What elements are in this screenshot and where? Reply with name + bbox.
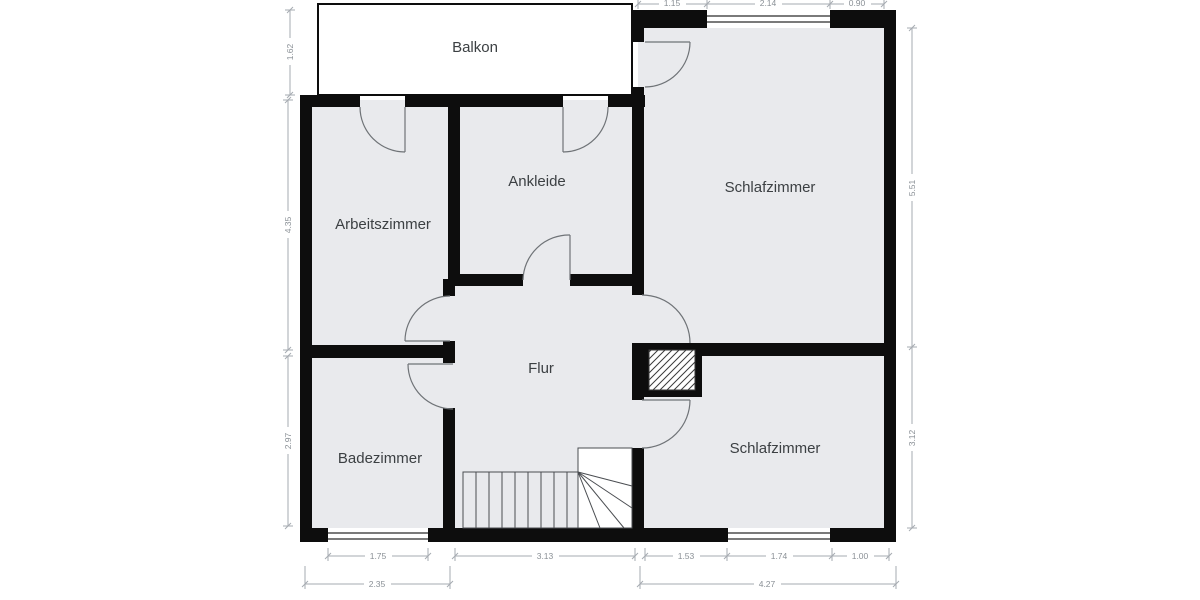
wall-bottom-a — [300, 528, 328, 542]
wall-arbeitszimmer-badezimmer — [300, 345, 455, 358]
svg-text:0.90: 0.90 — [849, 0, 866, 8]
room-label-schlafzimmer-bottom: Schlafzimmer — [730, 440, 821, 457]
wall-center-vert-a — [632, 10, 644, 42]
dim-bottom-inner-1: 3.13 — [452, 548, 638, 561]
dim-right-0: 5.51 — [907, 25, 917, 350]
wall-top-right-a — [638, 10, 707, 28]
room-label-ankleide: Ankleide — [508, 173, 566, 190]
wall-exterior-left — [300, 95, 312, 542]
wall-ankleide-south-b — [570, 274, 644, 286]
dim-top-0: 1.15 — [635, 0, 710, 9]
shaft-hatch — [649, 350, 695, 390]
floor-plan-page: Balkon Arbeitszimmer Ankleide Schlafzimm… — [0, 0, 1200, 600]
dim-bottom-inner-4: 1.00 — [832, 548, 892, 561]
wall-arbeitszimmer-ankleide — [448, 107, 460, 279]
wall-center-vert-b — [632, 87, 644, 295]
room-label-schlafzimmer-top: Schlafzimmer — [725, 179, 816, 196]
dim-left-0: 1.62 — [285, 7, 295, 98]
shaft — [642, 343, 702, 397]
svg-text:4.35: 4.35 — [283, 216, 293, 233]
svg-text:5.51: 5.51 — [907, 179, 917, 196]
wall-bottom-b — [428, 528, 728, 542]
svg-text:1.62: 1.62 — [285, 43, 295, 60]
dim-bottom-inner-2: 1.53 — [642, 548, 730, 561]
wall-schlafzimmer-divider — [702, 343, 896, 356]
wall-flur-left-c — [443, 408, 455, 542]
wall-top-left-a — [300, 95, 360, 107]
dim-right-1: 3.12 — [907, 347, 917, 531]
floor-plan: Balkon Arbeitszimmer Ankleide Schlafzimm… — [0, 0, 1200, 600]
svg-text:1.00: 1.00 — [852, 551, 869, 561]
svg-text:3.13: 3.13 — [537, 551, 554, 561]
dim-top-1: 2.14 — [707, 0, 833, 9]
dim-bottom-inner-3: 1.74 — [727, 548, 835, 561]
room-label-flur: Flur — [528, 360, 554, 377]
dim-left-2: 2.97 — [283, 353, 293, 529]
svg-text:1.75: 1.75 — [370, 551, 387, 561]
svg-text:2.35: 2.35 — [369, 579, 386, 589]
floor-right-section — [638, 14, 890, 536]
window-top-gap — [707, 10, 830, 28]
svg-text:1.15: 1.15 — [664, 0, 681, 8]
wall-exterior-right — [884, 10, 896, 542]
dim-bottom-outer-0: 2.35 — [302, 566, 453, 589]
dim-left-1: 4.35 — [283, 97, 293, 353]
wall-bottom-c — [830, 528, 896, 542]
wall-flur-left-a — [443, 279, 455, 296]
stairs-winder-outline — [578, 448, 632, 528]
room-label-balkon: Balkon — [452, 39, 498, 56]
svg-text:1.53: 1.53 — [678, 551, 695, 561]
wall-top-left-b — [405, 95, 563, 107]
svg-text:4.27: 4.27 — [759, 579, 776, 589]
window-br-gap — [728, 528, 830, 542]
room-label-badezimmer: Badezimmer — [338, 450, 422, 467]
wall-center-vert-d — [632, 448, 644, 542]
svg-text:2.14: 2.14 — [760, 0, 777, 8]
svg-text:3.12: 3.12 — [907, 429, 917, 446]
window-bottom-right — [728, 528, 830, 542]
window-bottom-left — [328, 528, 428, 542]
svg-text:1.74: 1.74 — [771, 551, 788, 561]
window-bl-gap — [328, 528, 428, 542]
dim-bottom-outer-1: 4.27 — [637, 566, 899, 589]
room-label-arbeitszimmer: Arbeitszimmer — [335, 216, 431, 233]
svg-text:2.97: 2.97 — [283, 432, 293, 449]
dim-bottom-inner-0: 1.75 — [325, 548, 431, 561]
window-top — [707, 10, 830, 28]
wall-ankleide-south-a — [448, 274, 523, 286]
dim-top-2: 0.90 — [830, 0, 887, 9]
